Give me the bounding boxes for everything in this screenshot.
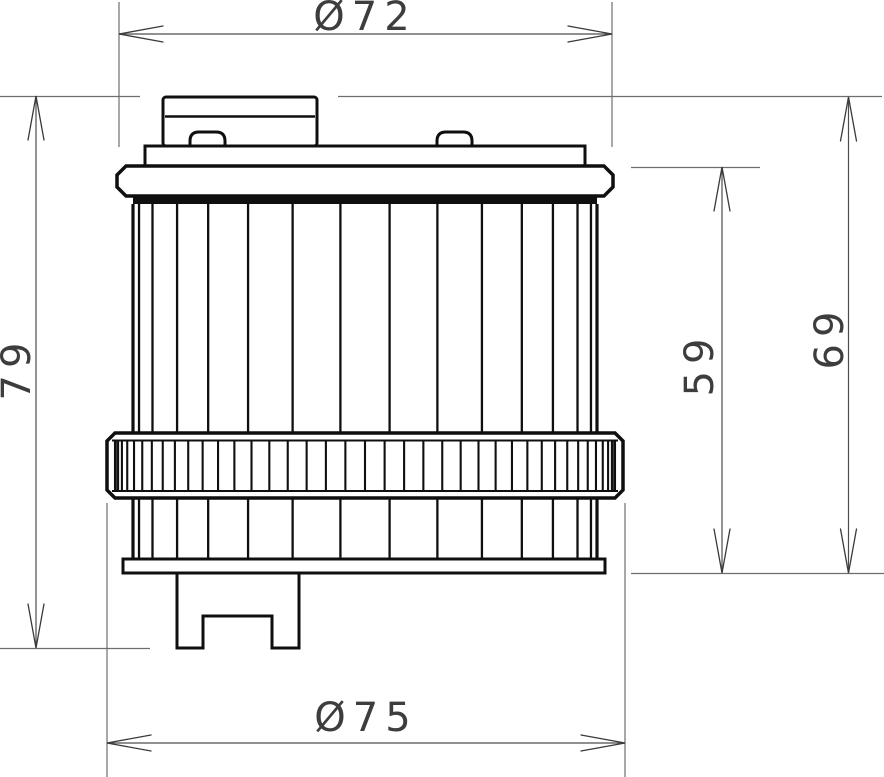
drawing-page: Ø72 Ø75 79 59 69	[0, 0, 884, 777]
label-height-body: 69	[807, 305, 853, 370]
pleats-upper-section	[133, 204, 597, 434]
top-connector-box	[163, 97, 317, 146]
label-height-overall: 79	[0, 336, 40, 401]
label-diameter-bottom: Ø75	[314, 695, 417, 741]
mounting-foot	[177, 573, 299, 648]
dome-right	[437, 132, 472, 146]
dome-left	[190, 132, 225, 146]
top-cap	[117, 166, 613, 196]
label-height-element: 59	[677, 332, 723, 397]
filter-technical-drawing: Ø72 Ø75 79 59 69	[0, 0, 884, 777]
upper-flange	[145, 146, 585, 166]
label-diameter-top: Ø72	[313, 0, 416, 40]
dimension-labels: Ø72 Ø75 79 59 69	[0, 0, 853, 741]
end-disc-strip	[133, 196, 597, 204]
pleats-lower-section	[133, 497, 597, 560]
bottom-plate	[123, 559, 605, 573]
filter-body	[107, 97, 623, 648]
